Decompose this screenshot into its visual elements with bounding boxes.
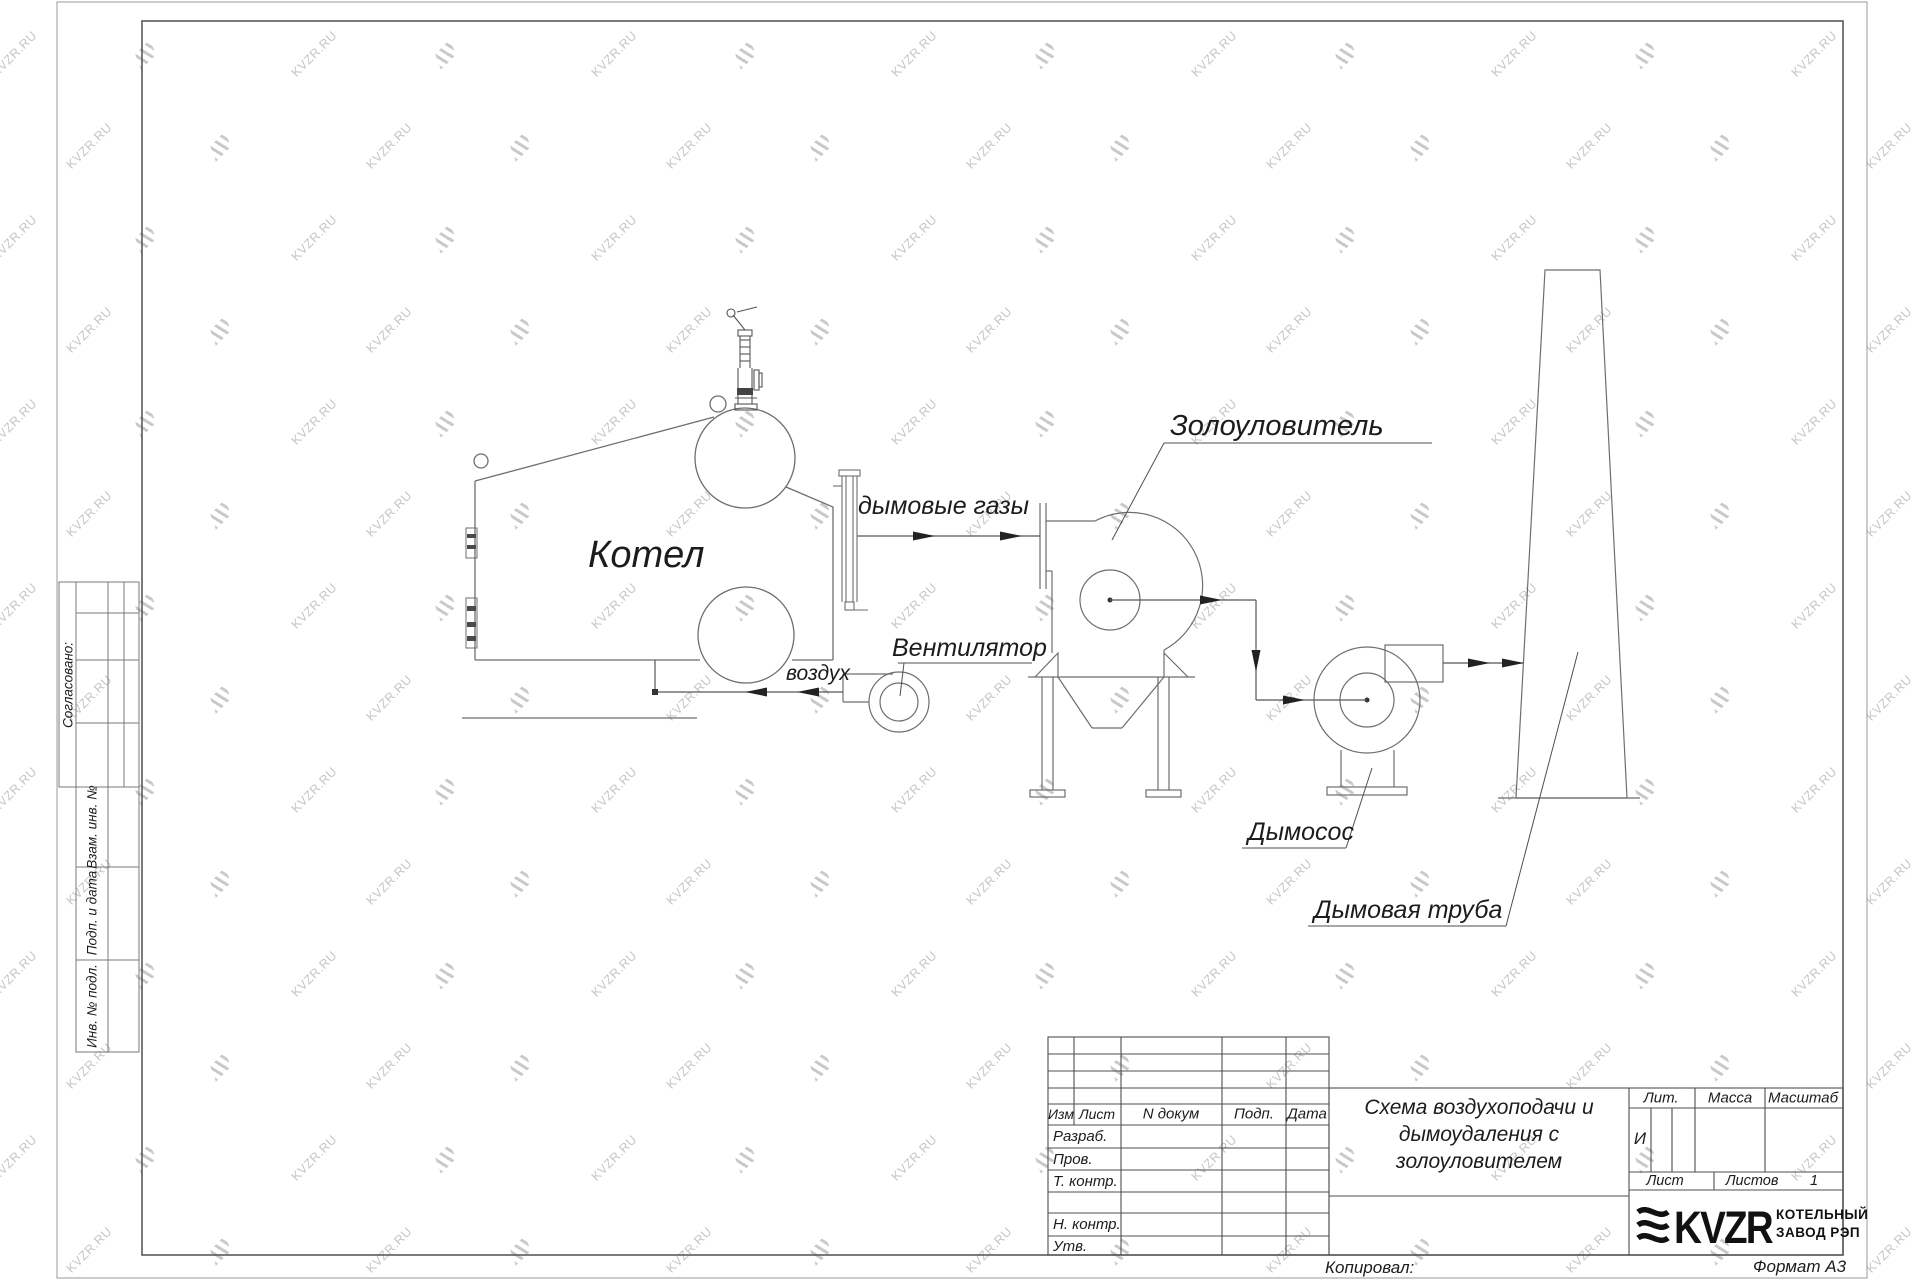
rev-header-list: Лист [1079, 1106, 1115, 1122]
company-name-line2: ЗАВОД РЭП [1776, 1224, 1860, 1241]
doc-title-line3: золоуловителем [1329, 1150, 1629, 1174]
upper-drum [695, 408, 795, 508]
sig-row-nkontr: Н. контр. [1053, 1216, 1121, 1233]
masshtab-header: Масштаб [1768, 1090, 1838, 1107]
stamp-agreed: Согласовано: [61, 642, 76, 728]
kopiroval-label: Копировал: [1325, 1258, 1414, 1278]
chimney-icon [1498, 270, 1640, 798]
doc-title-line2: дымоудаления с [1329, 1123, 1629, 1147]
kvzr-logo-text: KVZR [1674, 1202, 1772, 1254]
rev-header-n-dokum: N докум [1143, 1106, 1200, 1123]
company-name-line1: КОТЕЛЬНЫЙ [1776, 1206, 1868, 1223]
doc-title-line1: Схема воздухоподачи и [1329, 1096, 1629, 1120]
stamp-podp-data: Подп. и дата [85, 871, 100, 956]
label-smoke-exhauster: Дымосос [1248, 818, 1354, 847]
label-boiler: Котел [588, 534, 705, 577]
drawing-sheet: KVZR.RUKVZR.RUKVZR.RUKVZR.RUKVZR.RUKVZR.… [0, 0, 1920, 1280]
label-chimney: Дымовая труба [1314, 896, 1502, 925]
sig-row-utv: Утв. [1053, 1238, 1087, 1255]
sig-row-razrab: Разраб. [1053, 1128, 1107, 1145]
ash-collector-icon [1028, 503, 1203, 797]
rev-header-podp: Подп. [1234, 1106, 1274, 1123]
lifting-lug-icon [474, 454, 488, 468]
smoke-exhauster-icon [1314, 645, 1443, 795]
fan-icon [843, 672, 929, 732]
economizer-icon [833, 470, 868, 610]
label-air: воздух [786, 662, 850, 686]
kvzr-logo-icon [1638, 1210, 1668, 1241]
list-label: Лист [1646, 1173, 1683, 1189]
lifting-lug-icon [710, 396, 726, 412]
lit-value: И [1634, 1129, 1646, 1149]
lower-drum [698, 587, 794, 683]
flue-gas-lines [857, 536, 1523, 700]
label-flue-gases: дымовые газы [858, 492, 1029, 521]
stamp-vzam-inv: Взам. инв. № [85, 785, 100, 869]
lit-header: Лит. [1643, 1090, 1678, 1107]
sig-row-tkontr: Т. контр. [1053, 1173, 1118, 1190]
label-fan: Вентилятор [892, 634, 1047, 663]
listov-label: Листов [1726, 1173, 1779, 1189]
sig-row-prov: Пров. [1053, 1151, 1093, 1168]
rev-header-izm: Изм [1048, 1106, 1074, 1122]
label-ash-collector: Золоуловитель [1170, 410, 1384, 443]
rev-header-data: Дата [1287, 1106, 1327, 1123]
format-label: Формат А3 [1753, 1257, 1846, 1277]
stamp-inv-podl: Инв. № подл. [85, 964, 100, 1048]
listov-value: 1 [1810, 1173, 1818, 1189]
massa-header: Масса [1708, 1090, 1752, 1107]
safety-valve-icon [727, 307, 762, 410]
